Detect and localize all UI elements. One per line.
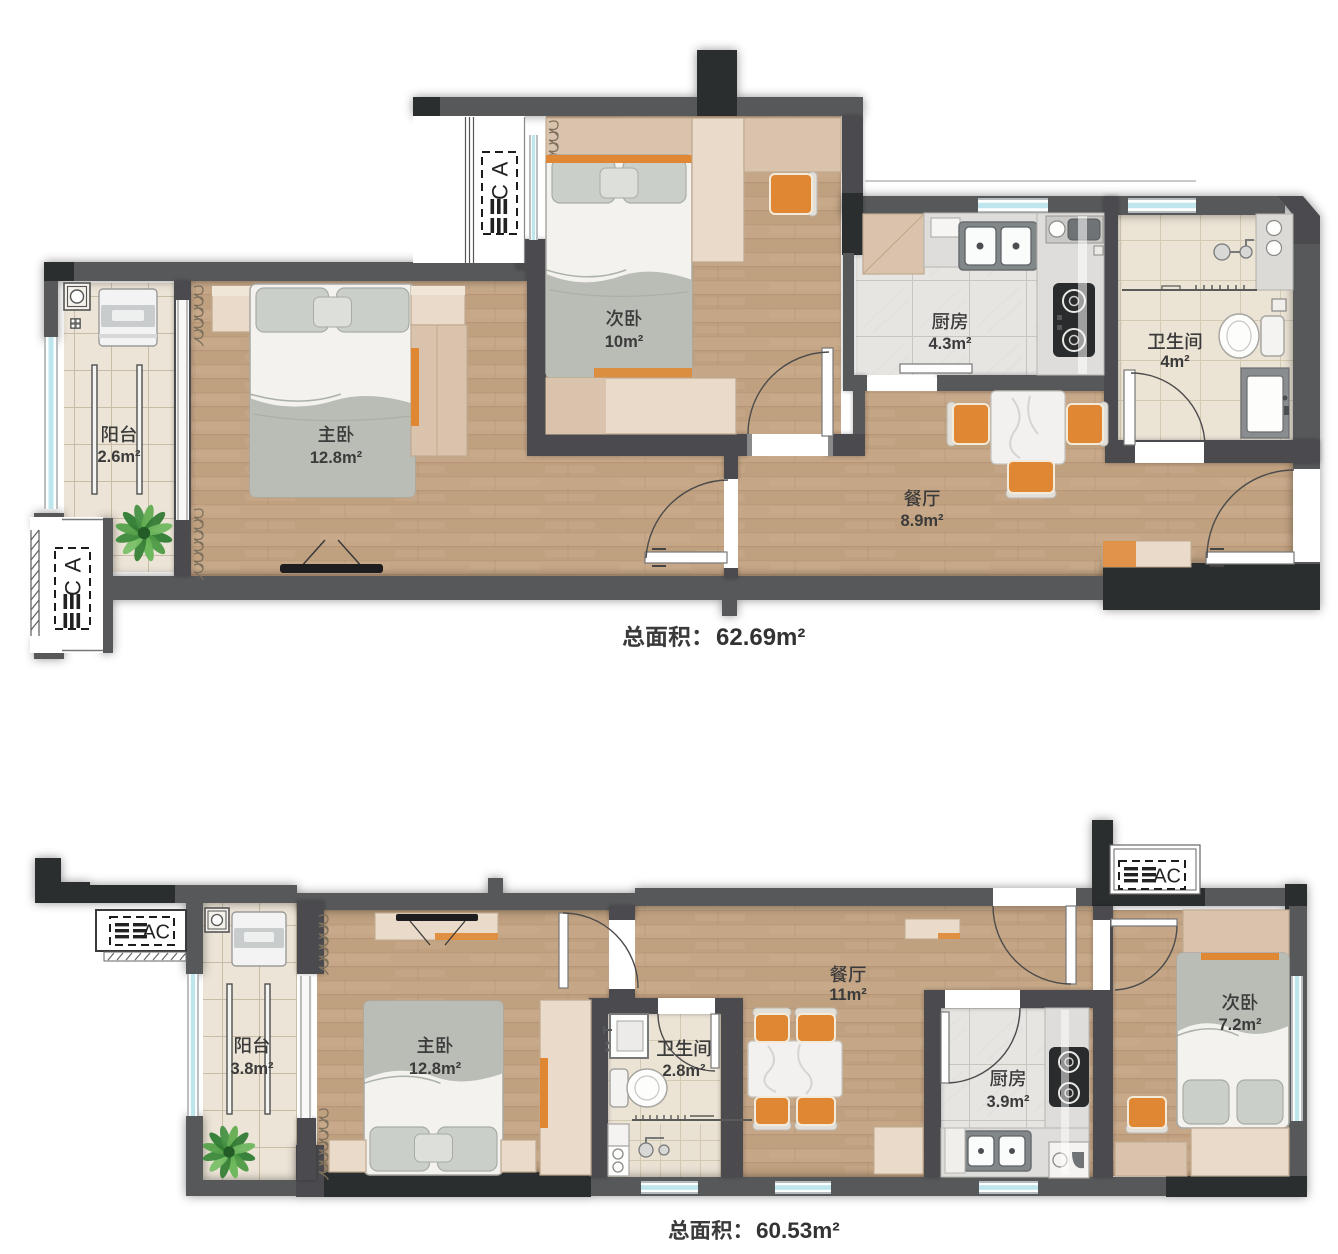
svg-text:2.6m²: 2.6m² bbox=[97, 448, 141, 466]
svg-text:11m²: 11m² bbox=[829, 986, 867, 1004]
svg-text:62.69m²: 62.69m² bbox=[716, 624, 805, 651]
svg-text:10m²: 10m² bbox=[605, 333, 644, 351]
svg-text:8.9m²: 8.9m² bbox=[900, 512, 944, 530]
svg-text:2.8m²: 2.8m² bbox=[662, 1062, 706, 1080]
svg-text:AC: AC bbox=[1153, 866, 1181, 888]
svg-text:7.2m²: 7.2m² bbox=[1218, 1016, 1262, 1034]
svg-text:3.8m²: 3.8m² bbox=[230, 1060, 274, 1078]
svg-text:C: C bbox=[488, 184, 513, 200]
svg-text:A: A bbox=[488, 161, 513, 176]
svg-text:12.8m²: 12.8m² bbox=[310, 449, 363, 467]
svg-text:12.8m²: 12.8m² bbox=[409, 1060, 462, 1078]
svg-text:AC: AC bbox=[142, 922, 170, 944]
svg-text:3.9m²: 3.9m² bbox=[986, 1093, 1030, 1111]
svg-text:60.53m²: 60.53m² bbox=[756, 1218, 840, 1243]
svg-text:C: C bbox=[61, 580, 86, 596]
svg-text:A: A bbox=[61, 557, 86, 572]
svg-text:4.3m²: 4.3m² bbox=[928, 335, 972, 353]
svg-text:4m²: 4m² bbox=[1160, 353, 1190, 371]
